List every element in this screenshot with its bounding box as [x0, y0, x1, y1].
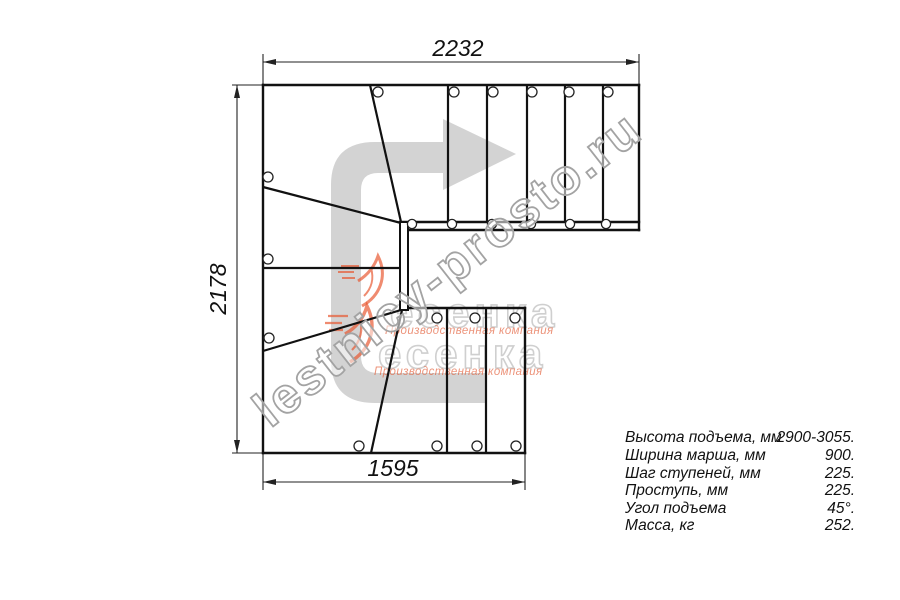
spec-value: 900.: [825, 447, 855, 464]
logo-caption-text: Производственная компания: [374, 366, 543, 378]
spec-label: Шаг ступеней, мм: [625, 465, 761, 482]
spec-value: 252.: [824, 517, 855, 534]
dimension-bottom-value: 1595: [367, 455, 418, 481]
spec-value: 225.: [824, 465, 855, 482]
spec-value: 225.: [824, 482, 855, 499]
spec-label: Масса, кг: [625, 517, 695, 534]
dimension-top-value: 2232: [431, 35, 483, 61]
spec-label: Высота подъема, мм: [625, 429, 782, 446]
staircase-plan-page: есенка Производственная компания есенка …: [0, 0, 900, 600]
spec-label: Ширина марша, мм: [625, 447, 766, 464]
spec-value: 2900-3055.: [776, 429, 855, 446]
spec-value: 45°.: [827, 500, 855, 517]
dimension-left-value: 2178: [205, 263, 231, 315]
specs-table: Высота подъема, мм 2900-3055. Ширина мар…: [624, 429, 855, 534]
spec-label: Угол подъема: [624, 500, 727, 517]
staircase-plan-drawing: есенка Производственная компания есенка …: [0, 0, 900, 600]
spec-label: Проступь, мм: [625, 482, 728, 499]
